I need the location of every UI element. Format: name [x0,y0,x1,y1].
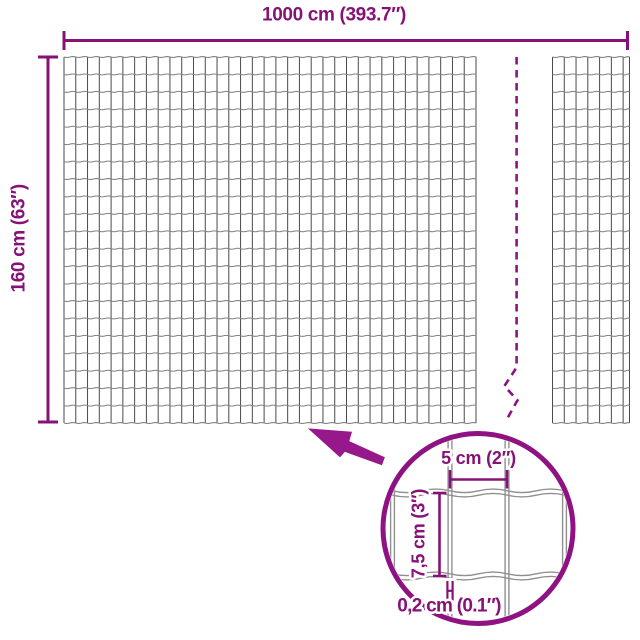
svg-text:7,5 cm (3″): 7,5 cm (3″) [409,489,429,579]
svg-text:0,2 cm (0.1″): 0,2 cm (0.1″) [397,596,501,617]
svg-text:1000 cm (393.7″): 1000 cm (393.7″) [262,5,406,26]
svg-text:160 cm (63″): 160 cm (63″) [9,184,30,292]
svg-text:5 cm (2″): 5 cm (2″) [441,448,516,468]
